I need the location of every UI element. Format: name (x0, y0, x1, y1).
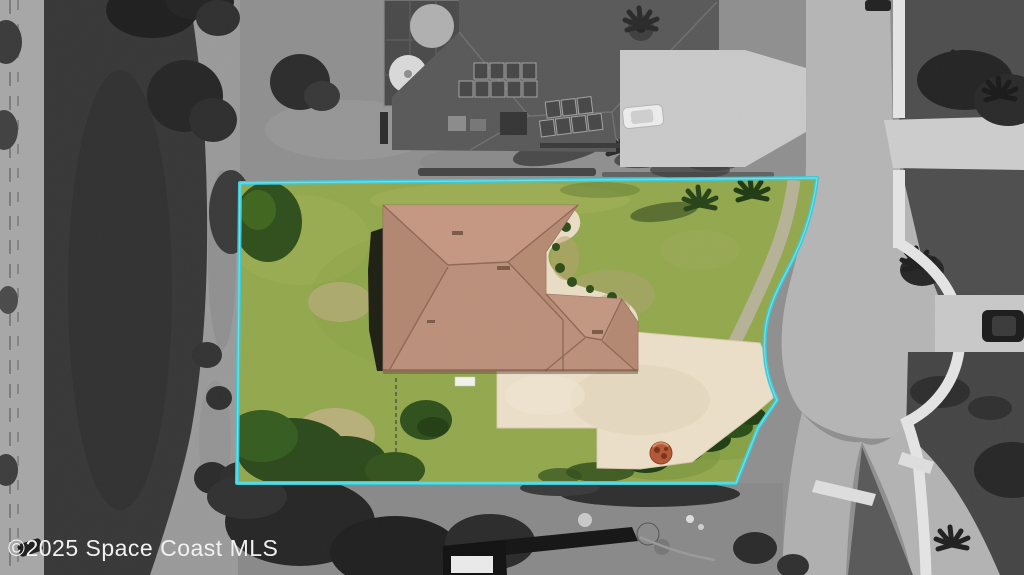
aerial-photo: ©2025 Space Coast MLS (0, 0, 1024, 575)
aerial-photo-canvas: ©2025 Space Coast MLS (0, 0, 1024, 575)
watermark: ©2025 Space Coast MLS (8, 535, 278, 561)
photo-grain (0, 0, 1024, 575)
